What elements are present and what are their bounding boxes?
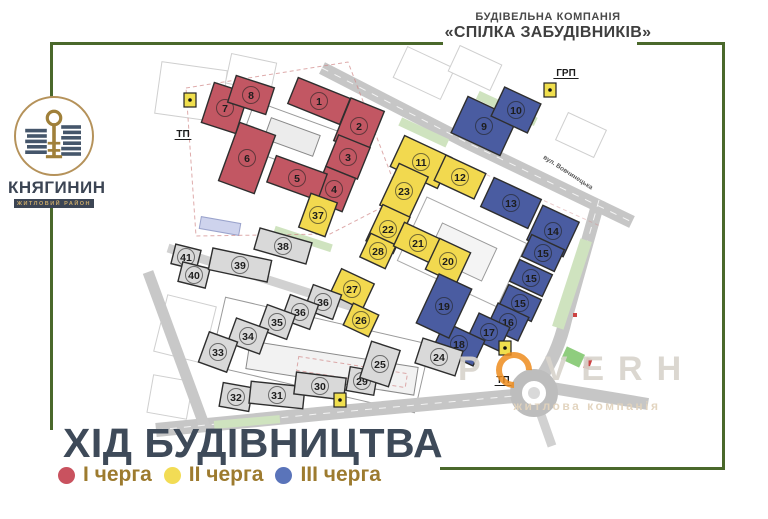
- watermark-logo: P VERH: [458, 350, 695, 389]
- phase-legend: І черга ІІ черга ІІІ черга: [58, 463, 381, 487]
- map-label-ГРП: ГРП: [553, 68, 578, 79]
- svg-text:20: 20: [442, 256, 454, 268]
- phase1-label: І черга: [83, 463, 152, 487]
- svg-text:32: 32: [230, 392, 242, 404]
- legend-item-phase2: ІІ черга: [164, 463, 264, 487]
- svg-text:19: 19: [438, 301, 450, 313]
- svg-text:3: 3: [345, 152, 351, 164]
- svg-text:37: 37: [312, 210, 324, 222]
- svg-text:11: 11: [415, 157, 426, 169]
- svg-text:6: 6: [244, 153, 250, 165]
- svg-text:9: 9: [481, 121, 487, 133]
- svg-text:27: 27: [346, 284, 358, 296]
- svg-text:36: 36: [317, 297, 329, 309]
- svg-text:36: 36: [294, 307, 306, 319]
- phase3-label: ІІІ черга: [300, 463, 380, 487]
- phase1-dot-icon: [58, 467, 75, 484]
- phase3-dot-icon: [275, 467, 292, 484]
- svg-text:15: 15: [537, 248, 549, 260]
- phase2-label: ІІ черга: [189, 463, 264, 487]
- building-32: 32: [219, 383, 253, 412]
- svg-text:22: 22: [382, 224, 394, 236]
- building-40: 40: [178, 262, 210, 288]
- svg-text:40: 40: [188, 270, 200, 282]
- svg-text:31: 31: [271, 390, 283, 402]
- phase2-dot-icon: [164, 467, 181, 484]
- svg-text:24: 24: [433, 352, 445, 364]
- svg-text:26: 26: [355, 315, 367, 327]
- svg-text:17: 17: [483, 327, 495, 339]
- svg-text:7: 7: [222, 103, 228, 115]
- svg-text:ГРП: ГРП: [556, 68, 576, 79]
- svg-text:23: 23: [398, 186, 410, 198]
- map-label-ТП: ТП: [175, 129, 192, 140]
- svg-text:30: 30: [314, 381, 326, 393]
- svg-text:10: 10: [510, 105, 522, 117]
- svg-text:15: 15: [514, 298, 526, 310]
- svg-text:12: 12: [454, 172, 466, 184]
- construction-progress-poster: БУДІВЕЛЬНА КОМПАНІЯ «СПІЛКА ЗАБУДІВНИКІВ…: [0, 0, 768, 519]
- svg-text:39: 39: [234, 260, 246, 272]
- svg-text:5: 5: [294, 173, 300, 185]
- building-6: 6: [219, 122, 276, 193]
- page-title: ХІД БУДІВНИЦТВА: [63, 420, 443, 467]
- building-13: 13: [481, 178, 542, 229]
- svg-text:28: 28: [372, 246, 384, 258]
- legend-item-phase1: І черга: [58, 463, 152, 487]
- utility-box: [184, 93, 196, 107]
- svg-text:2: 2: [356, 121, 362, 133]
- watermark-subtitle: житлова компанія: [462, 399, 712, 413]
- svg-text:34: 34: [242, 331, 254, 343]
- svg-text:33: 33: [212, 347, 224, 359]
- utility-box: [334, 393, 346, 407]
- watermark-circle-icon: [488, 344, 539, 395]
- watermark-letter: P: [458, 350, 483, 389]
- svg-text:13: 13: [505, 198, 517, 210]
- building-39: 39: [208, 248, 271, 282]
- svg-text:35: 35: [271, 317, 283, 329]
- svg-text:25: 25: [374, 359, 386, 371]
- svg-text:21: 21: [412, 238, 424, 250]
- svg-text:8: 8: [248, 90, 254, 102]
- watermark-letters: VERH: [545, 350, 695, 389]
- utility-box: [544, 83, 556, 97]
- svg-text:14: 14: [547, 226, 559, 238]
- svg-text:ТП: ТП: [176, 129, 189, 140]
- svg-text:15: 15: [525, 273, 537, 285]
- svg-text:38: 38: [277, 241, 289, 253]
- legend-item-phase3: ІІІ черга: [275, 463, 380, 487]
- svg-text:4: 4: [331, 184, 337, 196]
- svg-text:1: 1: [316, 96, 322, 108]
